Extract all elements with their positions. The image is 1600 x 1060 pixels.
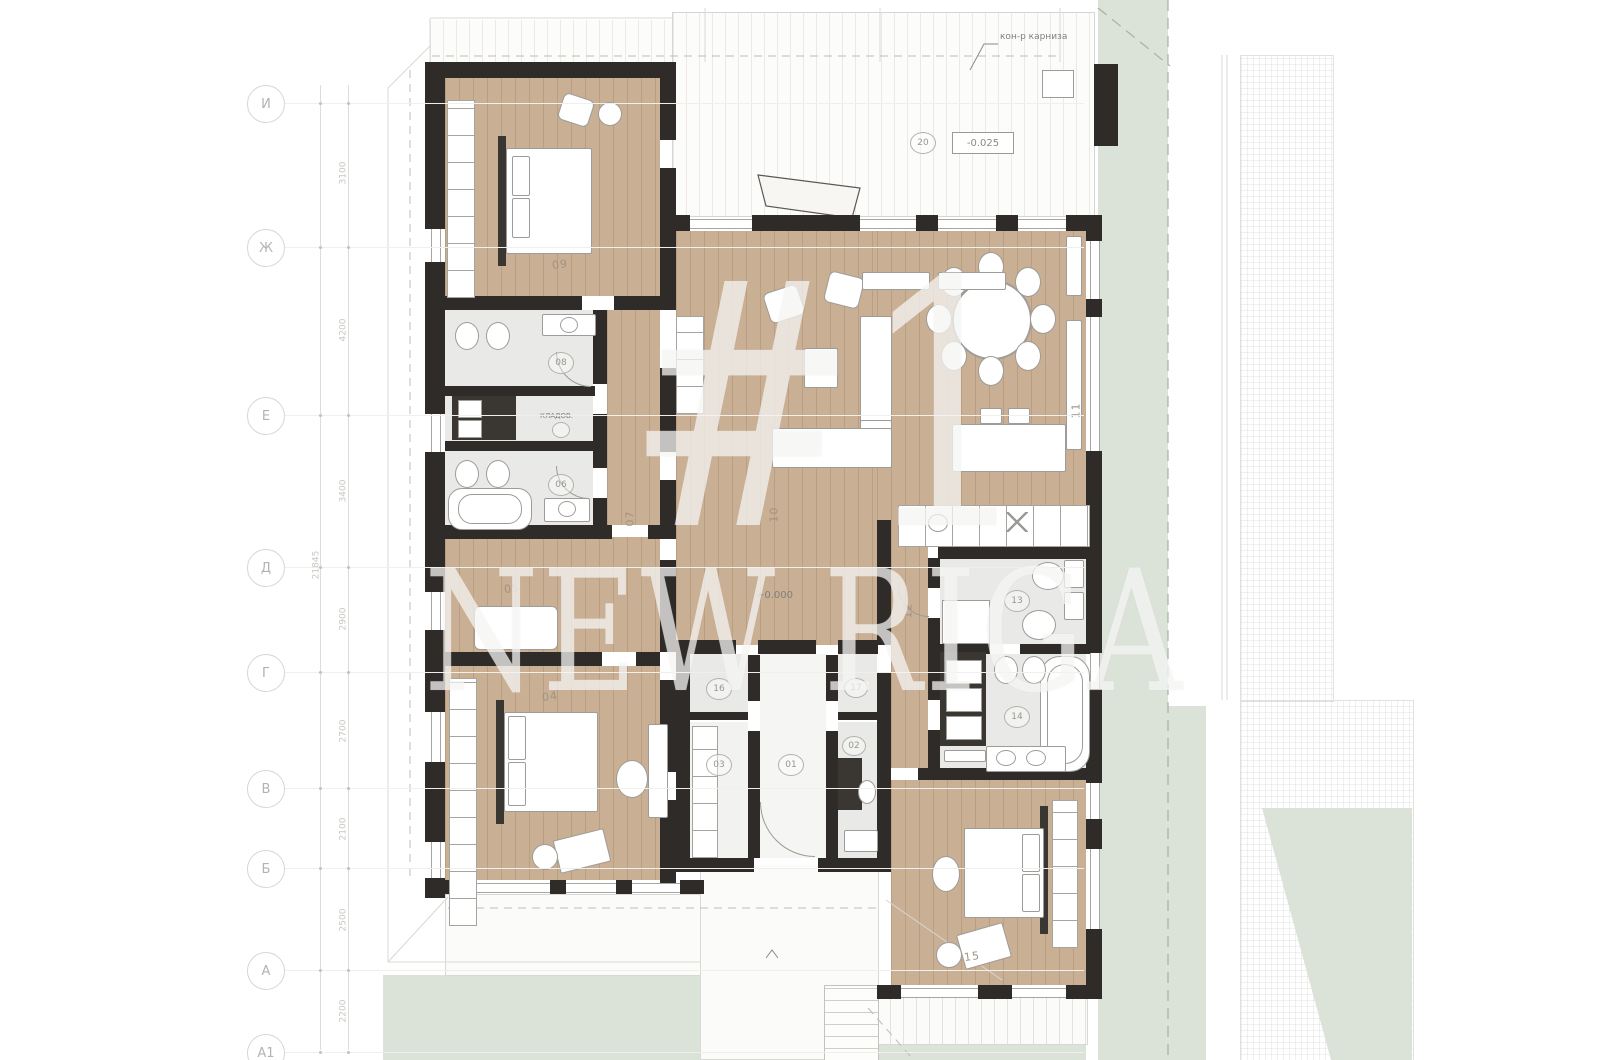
window [431,414,441,452]
pillow [1022,874,1040,912]
wall-segment [1086,819,1102,849]
dimension: 2100 [338,818,348,841]
washer-stack [838,758,862,810]
wall-segment [676,858,754,872]
axis-label: Е [247,397,285,435]
dimension: 3400 [338,480,348,503]
watermark-text: NEW RIGA [424,548,1185,716]
pillow [508,762,526,806]
dimension: 3100 [338,162,348,185]
tick [319,246,322,249]
window [566,883,616,893]
axis-label: И [247,85,285,123]
bidet [486,460,510,488]
wall-segment [550,880,566,894]
dimension: 2200 [338,1000,348,1023]
wall-segment [425,762,445,842]
level-terrace: -0.025 [952,132,1014,154]
bidet [486,322,510,350]
tick [347,1051,350,1054]
window [1012,988,1066,998]
tick [319,566,322,569]
tick [319,671,322,674]
window [1090,783,1100,819]
axis-label: Г [247,654,285,692]
tick [319,1051,322,1054]
room-label-08: 08 [548,352,574,374]
window-sill-bench [1066,320,1082,450]
axis-label: А [247,952,285,990]
tick [347,787,350,790]
window [431,842,441,878]
wall-segment [1086,299,1102,317]
armchair-15 [932,856,960,892]
wall-segment [425,878,445,898]
towel-rail [944,750,986,762]
wall-segment [425,296,582,310]
chimney [1094,64,1118,146]
wall-segment [1086,929,1102,989]
wall-segment [826,731,838,858]
wall-segment [818,858,891,872]
pantry-shelves [692,726,718,858]
terrace-box [1042,70,1074,98]
wall-segment [425,62,675,78]
sink-02 [844,830,878,852]
dimension: 2700 [338,720,348,743]
tick [319,787,322,790]
tick [319,969,322,972]
wall-segment [616,880,632,894]
tick [347,102,350,105]
dimension: 4200 [338,319,348,342]
wardrobe-15 [1052,800,1078,948]
wall-segment [425,62,445,229]
watermark-number: #1 [625,238,1036,578]
window [465,883,550,893]
window-sill-bench [1066,236,1082,296]
room-label-20: 20 [910,132,936,154]
axis-label: Б [247,850,285,888]
window [431,229,441,262]
wall-segment [425,262,445,414]
side-table-09 [598,102,622,126]
tick [319,414,322,417]
window [1090,241,1100,299]
pillow [512,198,530,238]
wall-segment [877,985,901,999]
wall-segment [445,386,595,396]
grid-line [284,970,1084,971]
sink-14 [1026,750,1046,766]
tick [347,969,350,972]
room-label-06: 06 [548,474,574,496]
wall-segment [1086,215,1102,241]
toilet [455,322,479,350]
wall-segment [1066,985,1102,999]
sink-08 [560,317,578,333]
grid-line [284,868,1084,869]
tick [347,246,350,249]
grid-line [284,788,1084,789]
room-label-15: 15 [963,949,981,964]
tick [347,867,350,870]
window [632,883,680,893]
axis-label: В [247,770,285,808]
tick [319,102,322,105]
tick [319,867,322,870]
wall-segment [660,62,676,140]
window [1090,317,1100,451]
wall-segment [445,441,595,451]
storage-note: КЛАДОВ. [540,412,573,420]
tick [347,414,350,417]
wardrobe-09 [447,100,475,298]
storage-circle [552,422,570,438]
wall-segment [978,985,1012,999]
armchair-04 [616,760,648,798]
console-04 [648,724,668,818]
room-label-02: 02 [842,736,866,756]
sink-14 [996,750,1016,766]
window [901,988,978,998]
pillow [1022,834,1040,872]
room-label-01: 01 [778,754,804,776]
toilet-02 [858,780,876,804]
axis-label: Ж [247,229,285,267]
toilet [455,460,479,488]
dimension: 2900 [338,608,348,631]
window [1090,849,1100,929]
axis-label: Д [247,549,285,587]
wall-segment [680,880,704,894]
cornice-annotation: кон-р карниза [1000,32,1067,42]
bathtub-inner [458,494,522,524]
desk-chair-04 [532,844,558,870]
wall-segment [593,414,607,468]
grid-line [284,103,1084,104]
dimension: 2500 [338,909,348,932]
dryer [458,420,482,438]
wall-segment [748,731,760,858]
dimension-total: 21845 [311,551,321,580]
sink-06 [558,501,576,517]
tick [347,566,350,569]
room-label-11: 11 [1070,403,1083,419]
desk-chair-15 [936,942,962,968]
room-label-03: 03 [706,754,732,776]
tick [347,671,350,674]
floor-plan-canvas: 20 -0.025 09 08 КЛАДОВ. 06 07 10 11 05 0… [0,0,1600,1060]
pillow [512,156,530,196]
grid-line [284,1052,1084,1053]
wall-segment [928,730,940,770]
room-label-09: 09 [551,257,569,272]
